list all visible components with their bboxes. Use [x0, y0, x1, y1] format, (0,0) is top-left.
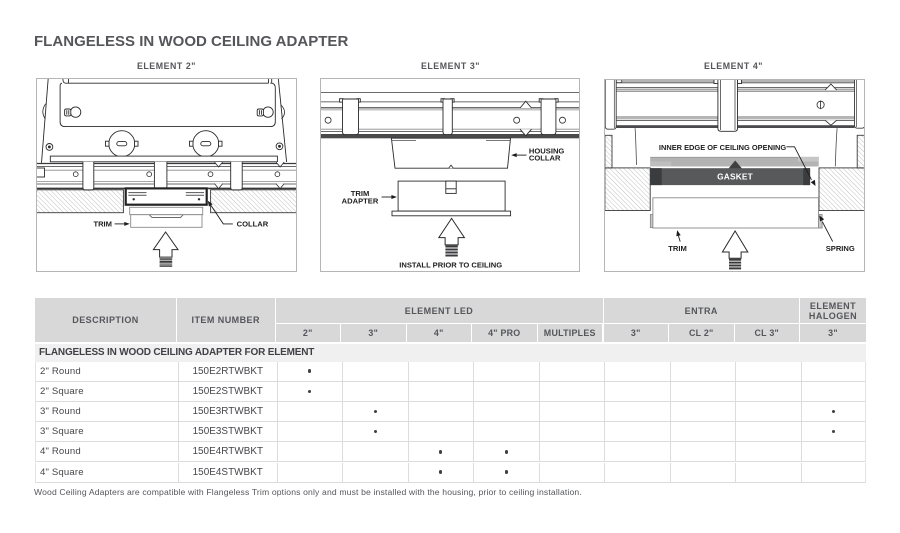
svg-text:INNER EDGE OF CEILING OPENING: INNER EDGE OF CEILING OPENING [658, 142, 785, 151]
svg-text:GASKET: GASKET [717, 171, 753, 181]
svg-text:COLLAR: COLLAR [529, 154, 561, 163]
svg-text:INSTALL PRIOR TO CEILING: INSTALL PRIOR TO CEILING [399, 261, 502, 270]
svg-text:SPRING: SPRING [825, 243, 854, 252]
svg-text:ADAPTER: ADAPTER [342, 196, 379, 205]
svg-text:TRIM: TRIM [93, 220, 112, 229]
svg-text:COLLAR: COLLAR [237, 220, 269, 229]
svg-text:TRIM: TRIM [668, 243, 687, 252]
